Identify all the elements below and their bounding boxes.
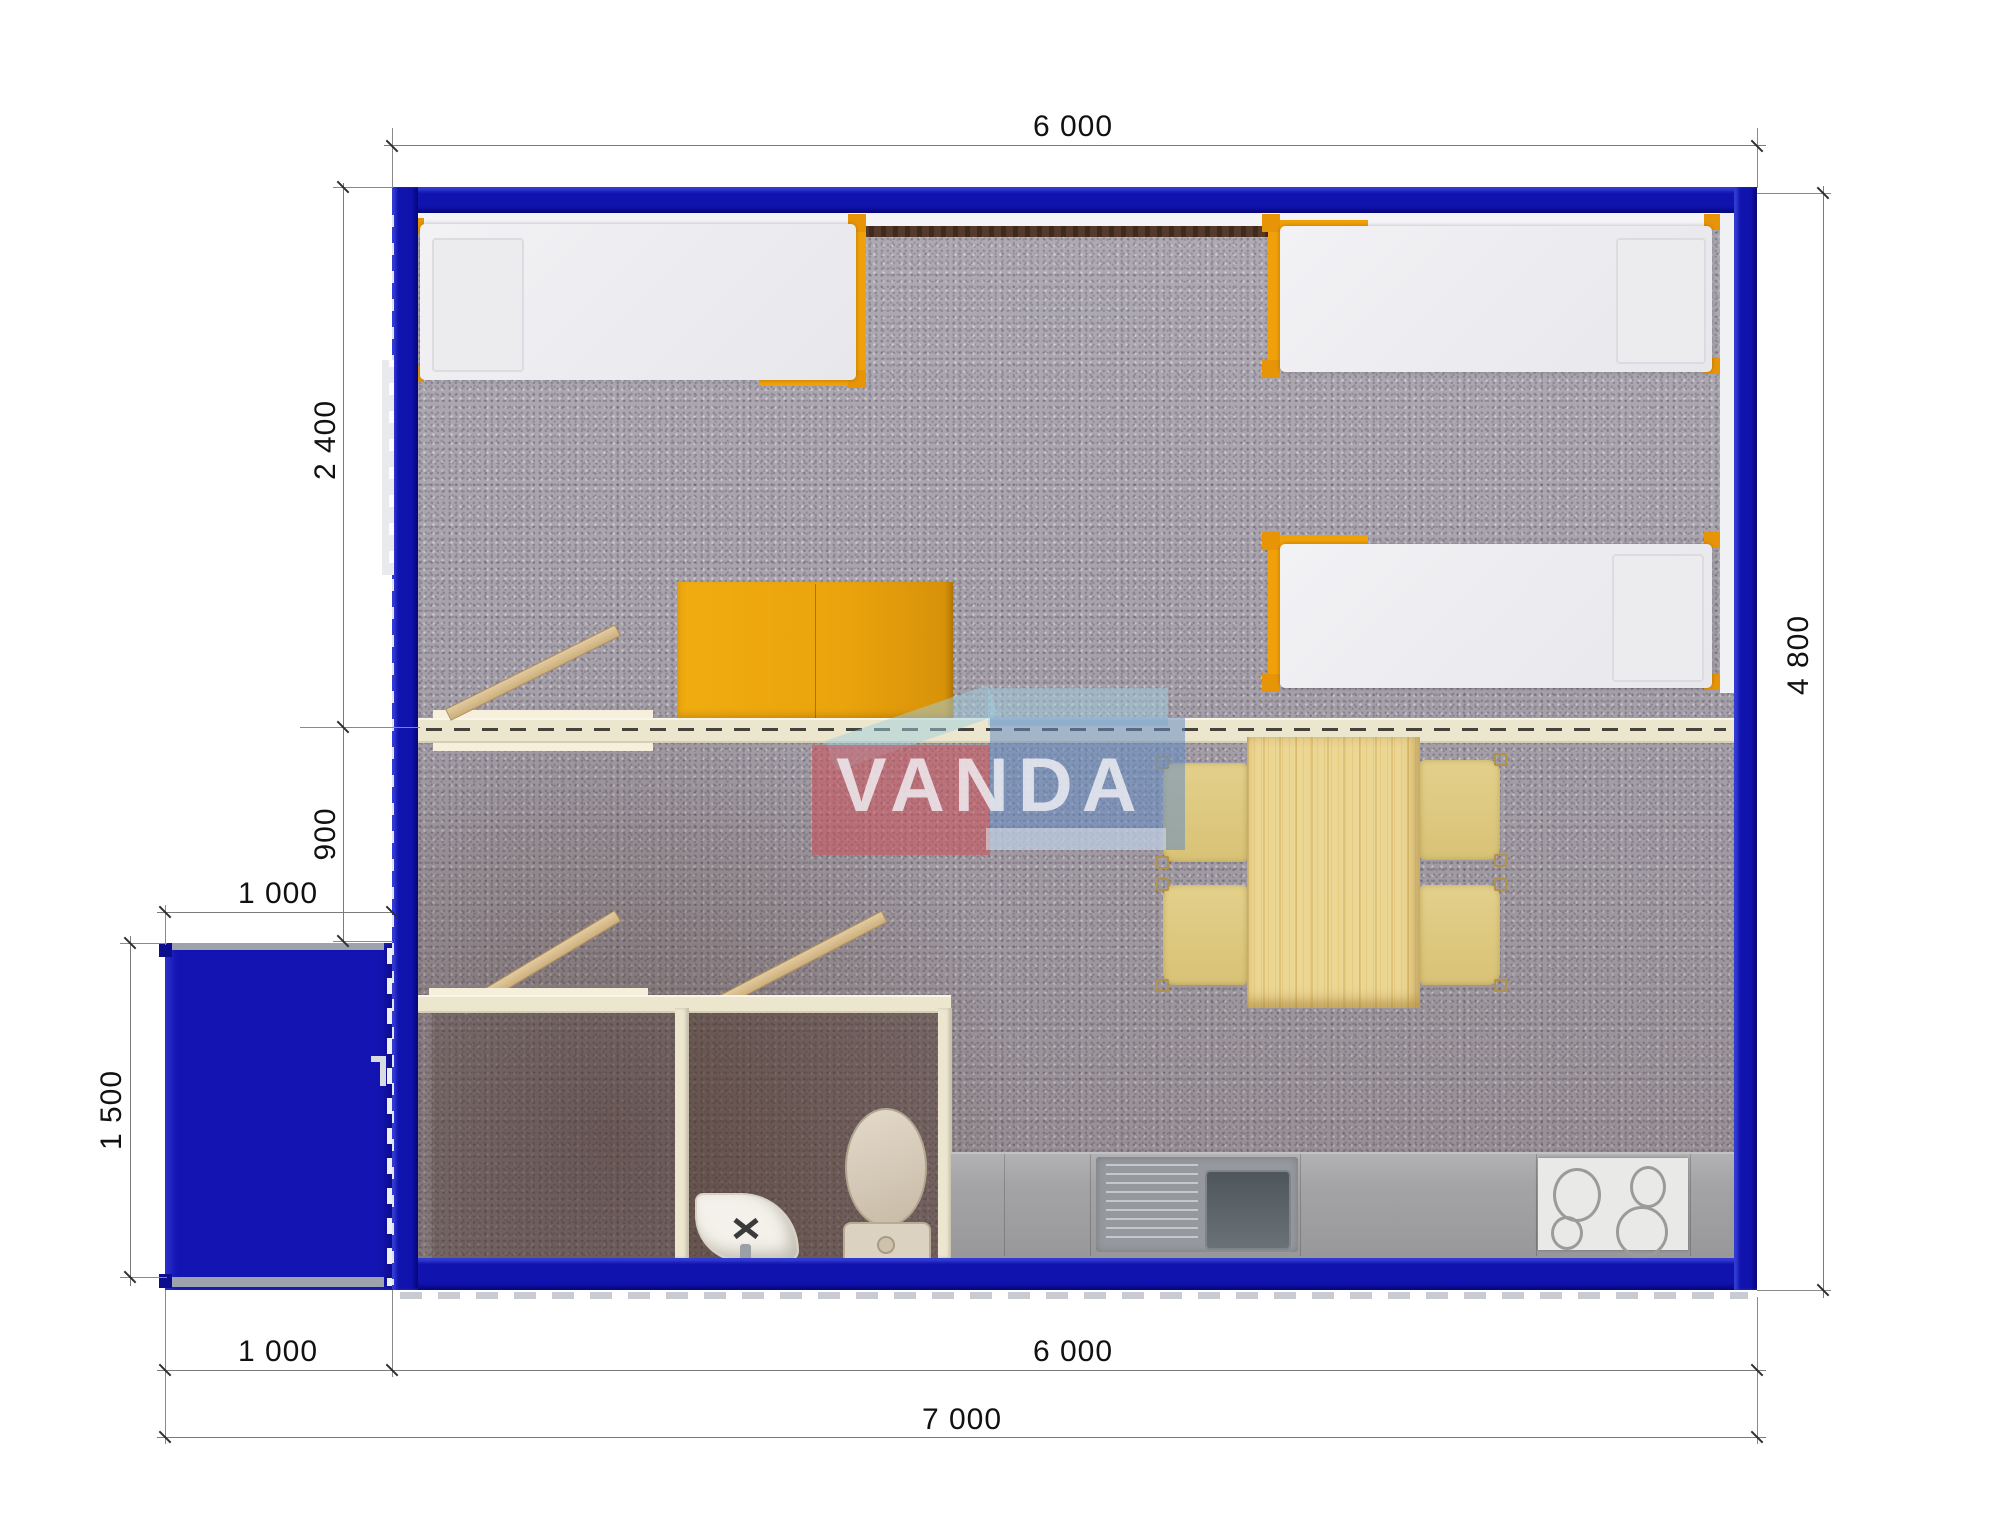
extension-line	[300, 727, 420, 728]
dim-porch-width: 1 000	[238, 877, 318, 911]
wardrobe-door-seam	[815, 584, 816, 720]
counter-seam	[1536, 1154, 1537, 1256]
extension-line	[392, 128, 393, 188]
porch-post	[159, 943, 172, 957]
counter-seam	[1300, 1154, 1301, 1256]
extension-line	[1757, 1290, 1831, 1291]
extension-line	[120, 943, 167, 944]
right-wall-window	[1720, 213, 1734, 693]
dimension-line	[157, 1370, 1766, 1371]
wall-bottom	[392, 1258, 1757, 1290]
watermark-text: VANDA	[836, 742, 1146, 829]
chair	[1420, 885, 1500, 985]
dim-hall-depth: 900	[309, 807, 343, 860]
chair	[1420, 760, 1500, 860]
wall-top	[392, 187, 1757, 213]
floor-plan-canvas: VANDA 6 000 4 800	[0, 0, 2000, 1537]
burner-icon	[1630, 1166, 1666, 1208]
bed-pillow	[432, 238, 524, 372]
dimension-line	[343, 183, 344, 943]
bed-pillow	[1616, 238, 1706, 364]
extension-line	[1757, 128, 1758, 188]
burner-icon	[1553, 1168, 1601, 1222]
dimension-line	[1823, 186, 1824, 1298]
counter-seam	[1690, 1154, 1691, 1256]
bed-post	[1262, 360, 1280, 378]
dim-bottom-main-width: 6 000	[1033, 1335, 1113, 1369]
bathroom-east-wall	[938, 1008, 952, 1258]
bed-post	[1262, 532, 1280, 550]
porch-top-step	[172, 943, 384, 950]
burner-icon	[1551, 1216, 1583, 1250]
watermark-base-band	[986, 828, 1166, 850]
dining-table	[1247, 737, 1420, 1008]
chair	[1163, 885, 1247, 985]
dim-bedroom-depth: 2 400	[309, 400, 343, 480]
partition-wall-board	[433, 742, 653, 751]
dim-porch-depth: 1 500	[95, 1070, 129, 1150]
toilet-flush-button	[877, 1236, 895, 1254]
dimension-line	[384, 145, 1766, 146]
dim-bottom-porch-width: 1 000	[238, 1335, 318, 1369]
porch-bottom-step	[172, 1277, 384, 1287]
porch-deck	[165, 943, 392, 1290]
bathroom-divider-wall	[675, 1008, 689, 1258]
bed-post	[1262, 674, 1280, 692]
dim-side-height: 4 800	[1782, 615, 1816, 695]
dim-bottom-total-width: 7 000	[922, 1403, 1002, 1437]
extension-line	[392, 1290, 393, 1377]
entrance-dashed-line	[387, 948, 392, 1286]
counter-seam	[1090, 1154, 1091, 1256]
extension-line	[1757, 193, 1831, 194]
bed-post	[1262, 214, 1280, 232]
shower-room-floor	[432, 1013, 675, 1258]
toilet-lid	[845, 1108, 927, 1227]
counter-seam	[1004, 1154, 1005, 1256]
dimension-line	[130, 936, 131, 1286]
extension-line	[165, 1290, 166, 1444]
door-handle-icon	[371, 1056, 386, 1062]
dim-top-width: 6 000	[1033, 110, 1113, 144]
dimension-line	[157, 1437, 1766, 1438]
burner-icon	[1616, 1206, 1668, 1258]
wall-right	[1734, 187, 1757, 1290]
extension-line	[120, 1277, 167, 1278]
slab-edge-dashes	[400, 1292, 1748, 1299]
kitchen-sink-basin	[1205, 1170, 1291, 1250]
bed-pillow	[1612, 554, 1704, 682]
dimension-line	[157, 912, 392, 913]
wall-left	[392, 187, 418, 1290]
sink-drainer-ridges	[1106, 1164, 1198, 1244]
